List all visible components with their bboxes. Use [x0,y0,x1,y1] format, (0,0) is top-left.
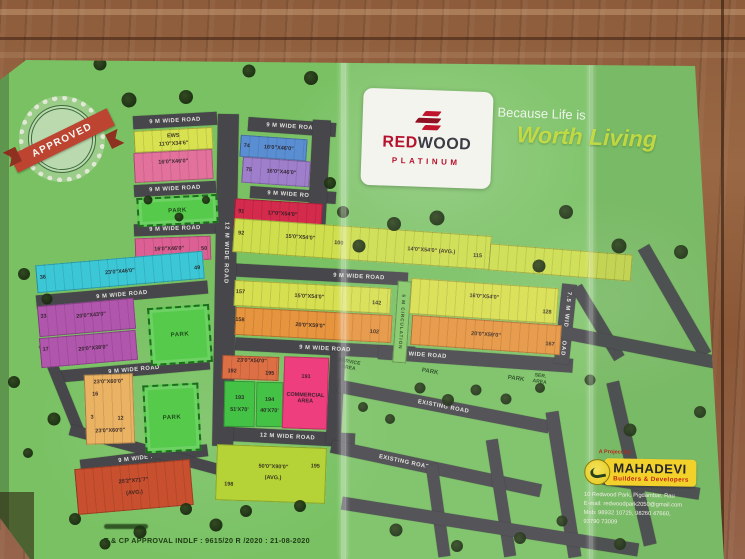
plots-red_avg-dims: 25'2"X71'7" [118,477,148,486]
wood-plank-seam [721,0,724,559]
plots-yellow_long-dims2: 14'0"X54'0" (AVG.) [407,246,455,255]
plot-purple-75: 7516'0"X46'0" [241,157,311,188]
developer-name: MAHADEVI [613,461,689,475]
plots-ews-tag: EWS [167,132,180,139]
plots-yellow_long-n3: 115 [473,253,482,260]
map-paper: 9 M WIDE ROAD9 M WIDE ROAD9 M WIDE ROAD9… [0,0,745,559]
tree-icon [451,540,463,552]
approval-footer: T & CP APPROVAL INDLF : 9615/20 R /2020 … [104,524,384,545]
plot-orange-192: 23'0"X50'0"192195 [222,355,280,381]
tree-icon [471,385,482,396]
road-label-r12-h: 12 M WIDE ROAD [260,433,316,442]
tree-icon [304,71,318,85]
tree-icon [243,65,256,78]
tcp-approval-text: T & CP APPROVAL INDLF : 9615/20 R /2020 … [104,536,384,545]
tree-icon [48,413,61,426]
plots-purple_33-dims: 20'0"X43'0" [76,311,106,320]
plots-orange_192-n1: 192 [227,369,236,375]
brand-tagline: Because Life is Worth Living [496,105,697,155]
tree-icon [202,196,210,204]
plots-purple_33-n1: 33 [40,313,47,320]
project-by-label: A Project by [599,449,715,457]
tree-icon [42,294,53,305]
plot-commercial: 191COMMERCIAL AREA [282,356,329,430]
plots-cyan-n2: 49 [194,265,201,272]
tree-icon [390,524,403,537]
plots-light_orange-n2: 3 [91,415,94,421]
brand-name-wood: WOOD [417,135,471,154]
developer-contact: 10 Redwood Park, Pigdambar, Rau E-mail: … [583,491,714,529]
plots-orange_158-n2: 102 [370,329,379,335]
brand-name-red: RED [382,133,418,151]
wood-grain-highlight [0,9,745,15]
plots-purple_17-dims: 20'0"X38'0" [78,344,108,353]
plots-yellow_long-n1: 92 [238,231,245,237]
plots-pink_top-dims: 16'0"X46'0" [158,159,188,167]
plots-commercial-label: COMMERCIAL AREA [285,391,325,406]
plot-green-193: 19351'X70' [224,381,256,428]
plots-orange_192-n2: 195 [265,370,274,376]
plots-red_91-dims: 17'0"X54'0" [267,210,297,218]
plots-orange_167-n2: 167 [545,342,555,349]
road-label-existing-2: EXISTING ROAD [378,453,430,470]
plot-pink-top: 16'0"X46'0" [133,149,213,183]
plots-cyan-n1: 36 [40,274,47,281]
tree-icon [557,516,568,527]
plots-yellow_157-n2: 142 [372,300,381,306]
tree-icon [415,383,426,394]
plots-yg_5090-sub: (AVG.) [265,475,282,482]
tree-icon [18,268,30,280]
plots-yellow_128-n2: 128 [542,309,552,316]
plot-yg-5090: 50'0"X90'0"(AVG.)198195 [215,444,327,504]
developer-subtitle: Builders & Developers [613,475,689,483]
brand-name: REDWOOD [382,133,471,154]
plots-orange_167-dims: 20'0"X59'0" [471,331,501,339]
paper-edge-shadow [0,60,9,559]
tree-icon [179,90,193,104]
road-label-r75-v: 7.5 M WIDE ROAD [559,291,572,356]
tree-icon [122,93,137,108]
road-band [486,439,516,557]
plots-light_orange-n1: 16 [92,391,98,397]
plots-yellow_long-dims: 15'0"X54'0" [285,234,315,242]
plots-ews-dims: 11'0"X34'6" [159,140,189,148]
road-label-r9-left-3: 9 M WIDE ROAD [149,225,201,233]
regional-script-caption [104,524,148,529]
approved-stamp: APPROVED [12,89,112,189]
tree-icon [144,196,153,205]
road-label-r12-v: 12 M WIDE ROAD [222,222,229,284]
park-area: PARK [147,304,213,366]
tree-icon [535,383,545,393]
tree-icon [175,213,184,222]
park-label: PARK [507,375,524,383]
tree-icon [69,513,81,525]
park-label: PARK [163,415,182,422]
plots-light_orange-n3: 12 [117,415,123,421]
road-label-r9-left-2: 9 M WIDE ROAD [149,185,201,194]
redwood-logo-card: REDWOOD PLATINUM [360,88,493,189]
road-label-circulation: 6 M CIRCULATION [398,294,407,349]
tree-icon [385,414,395,424]
plots-light_orange-dims2: 23'0"X60'0" [95,428,125,435]
plots-green_193-dims: 51'X70' [230,406,249,412]
plot-light-orange: 23'0"X60'0"1631223'0"X60'0" [84,373,135,445]
tree-icon [501,394,512,405]
plots-blue_74-n1: 74 [243,143,250,149]
tree-icon [358,402,368,412]
plots-yg_5090-n1: 198 [224,482,233,488]
plots-purple_75-n1: 75 [246,167,253,173]
plots-yellow_157-n1: 157 [236,289,245,295]
tree-icon [514,532,526,544]
tree-icon [353,240,366,253]
mahadevi-logo: MAHADEVI Builders & Developers [604,458,696,487]
plots-pink_50-dims: 16'0"X46'0" [154,246,184,253]
plots-orange_192-dims: 23'0"X50'0" [237,358,267,365]
tree-icon [23,448,33,458]
tree-icon [240,505,252,517]
tree-icon [387,217,401,231]
plots-green_193-n1: 193 [235,395,244,401]
plots-yg_5090-n2: 195 [311,463,320,469]
plot-green-194: 19440'X70' [256,382,284,427]
plots-green_194-dims: 40'X70' [260,408,279,414]
plot-red-avg: 25'2"X71'7"(AVG.) [74,459,194,515]
plots-cyan-dims: 23'0"X46'0" [105,268,135,277]
tree-icon [430,211,445,226]
wood-grain-highlight [0,52,745,58]
plots-light_orange-dims: 23'0"X60'0" [94,379,124,386]
plots-green_194-n1: 194 [265,397,274,403]
brand-subtitle: PLATINUM [392,156,461,167]
tree-icon [324,177,336,189]
plots-red_avg-sub: (AVG.) [126,489,143,496]
plots-yellow_128-dims: 16'0"X54'0" [469,293,499,301]
tree-icon [533,260,546,273]
photo-of-layout-map: 9 M WIDE ROAD9 M WIDE ROAD9 M WIDE ROAD9… [0,0,745,559]
park-area: PARK [142,383,201,454]
plots-purple_17-n1: 17 [42,346,49,353]
plots-yellow_157-dims: 15'0"X54'0" [294,293,324,301]
wood-plank-seam [0,37,745,40]
road-label-r9-top-left: 9 M WIDE ROAD [149,116,201,125]
tree-icon [8,376,20,388]
park-label: PARK [171,331,190,338]
plots-orange_158-dims: 20'0"X59'0" [295,322,325,330]
road-label-r9-top-center: 9 M WIDE ROAD [266,122,318,132]
plots-blue_74-dims: 16'0"X46'0" [264,144,294,152]
plots-red_91-n1: 91 [238,208,244,214]
plots-yg_5090-dims: 50'0"X90'0" [258,464,288,471]
tree-icon [294,500,306,512]
paper-fold-line [341,0,346,559]
mahadevi-swan-emblem-icon [584,458,610,484]
road-existing-1: EXISTING ROAD [337,380,551,434]
developer-card: A Project by MAHADEVI Builders & Develop… [583,449,714,529]
plots-orange_158-n1: 158 [235,316,244,322]
plots-commercial-n1: 191 [301,374,310,380]
tree-icon [442,394,454,406]
park-label: PARK [421,368,438,377]
plots-purple_75-dims: 16'0"X46'0" [266,168,296,176]
tree-icon [559,205,573,219]
redwood-logo-icon [416,111,440,131]
tree-icon [180,503,192,515]
